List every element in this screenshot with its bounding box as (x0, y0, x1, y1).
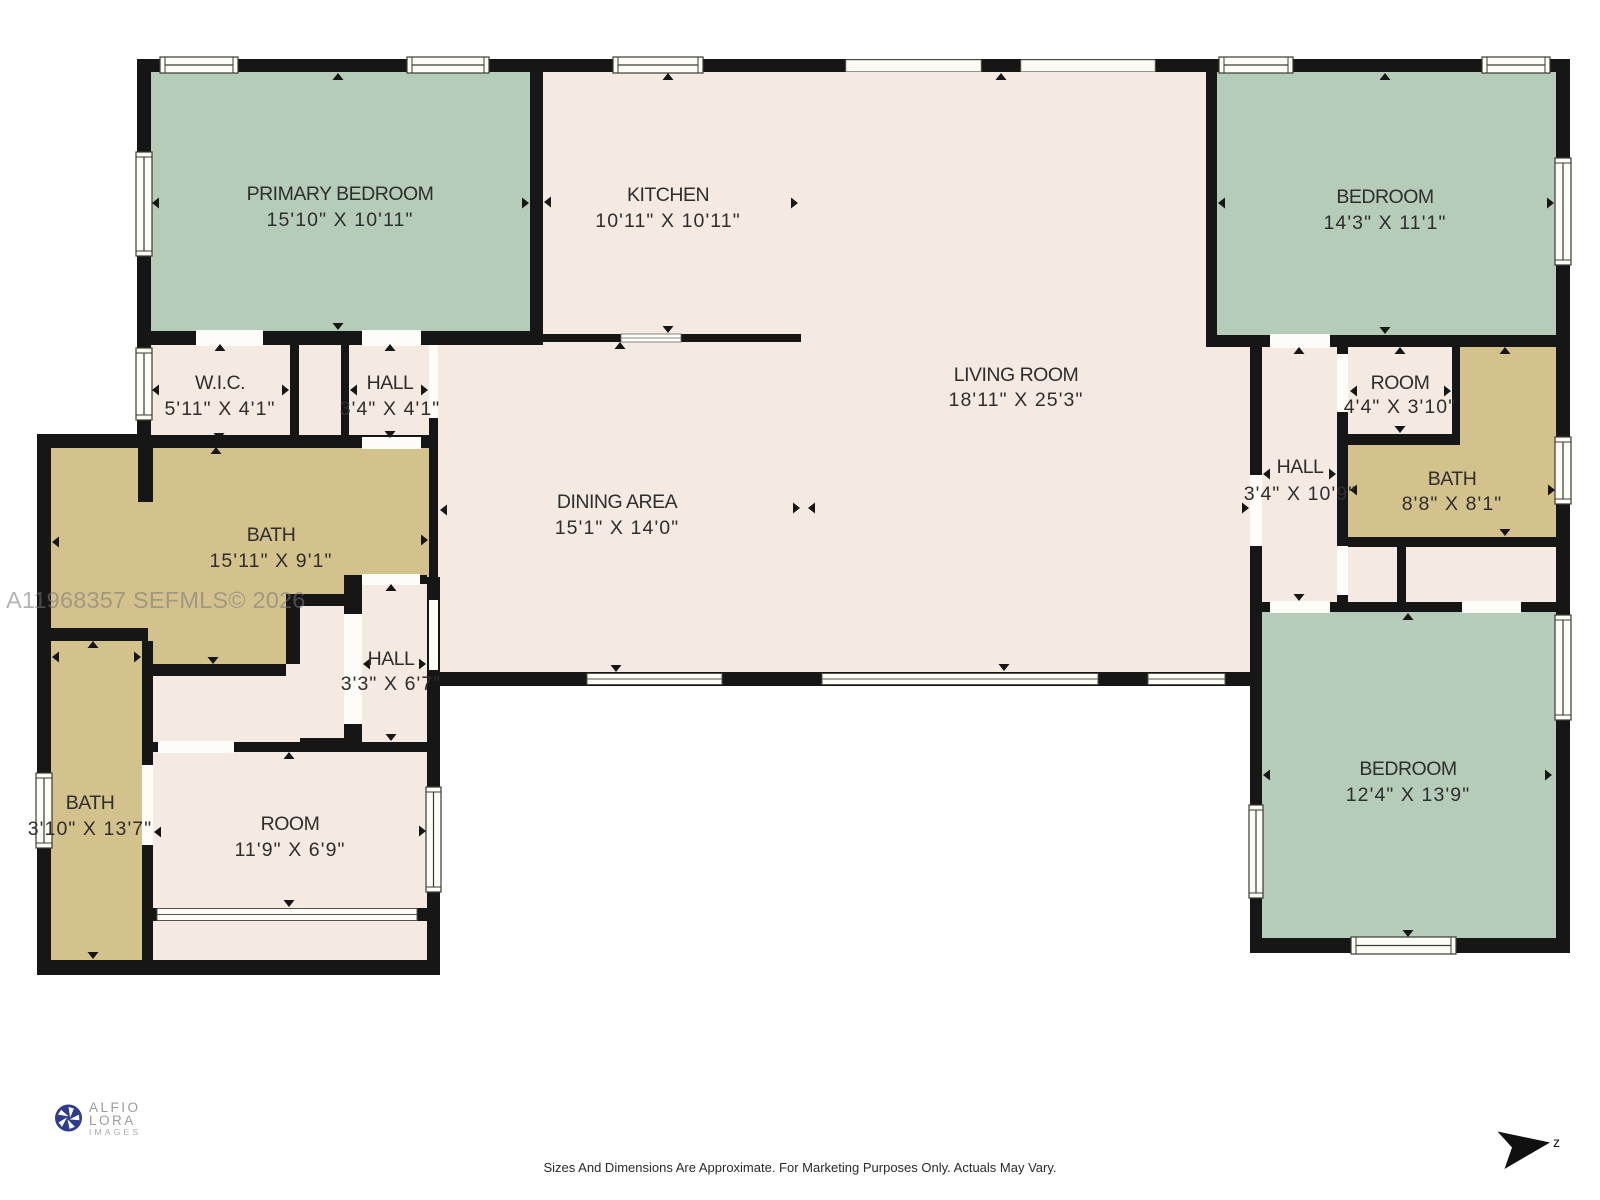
svg-text:HALL: HALL (1277, 456, 1324, 478)
svg-text:14'3" X 11'1": 14'3" X 11'1" (1323, 212, 1446, 234)
svg-text:BATH: BATH (1428, 468, 1477, 490)
svg-text:18'11" X 25'3": 18'11" X 25'3" (949, 389, 1084, 411)
svg-text:15'10" X 10'11": 15'10" X 10'11" (267, 209, 414, 231)
svg-text:3'4" X 10'9": 3'4" X 10'9" (1244, 483, 1357, 505)
svg-text:15'11" X 9'1": 15'11" X 9'1" (209, 550, 332, 572)
svg-text:BATH: BATH (66, 792, 115, 814)
svg-text:12'4" X 13'9": 12'4" X 13'9" (1346, 784, 1471, 806)
svg-text:ROOM: ROOM (261, 813, 320, 835)
svg-text:IMAGES: IMAGES (89, 1127, 141, 1137)
svg-text:LIVING ROOM: LIVING ROOM (954, 364, 1079, 386)
svg-text:Sizes And Dimensions Are Appro: Sizes And Dimensions Are Approximate. Fo… (544, 1160, 1057, 1175)
svg-text:A11968357 SEFMLS© 2026: A11968357 SEFMLS© 2026 (6, 587, 306, 613)
svg-text:10'11" X 10'11": 10'11" X 10'11" (595, 210, 741, 232)
svg-text:KITCHEN: KITCHEN (627, 184, 709, 206)
svg-text:BATH: BATH (247, 524, 296, 546)
svg-text:3'10" X 13'7": 3'10" X 13'7" (28, 818, 153, 840)
svg-text:15'1" X 14'0": 15'1" X 14'0" (555, 517, 680, 539)
svg-text:ROOM: ROOM (1371, 372, 1430, 394)
svg-text:HALL: HALL (367, 372, 414, 394)
svg-text:4'4" X 3'10": 4'4" X 3'10" (1344, 396, 1457, 418)
svg-text:W.I.C.: W.I.C. (195, 372, 245, 394)
svg-text:5'11" X 4'1": 5'11" X 4'1" (164, 398, 275, 420)
svg-text:DINING AREA: DINING AREA (557, 491, 678, 513)
svg-text:BEDROOM: BEDROOM (1336, 186, 1433, 208)
svg-text:LORA: LORA (89, 1113, 136, 1128)
svg-text:PRIMARY BEDROOM: PRIMARY BEDROOM (247, 183, 434, 205)
svg-text:3'4" X 4'1": 3'4" X 4'1" (340, 398, 441, 420)
svg-text:HALL: HALL (368, 648, 415, 670)
svg-text:11'9" X 6'9": 11'9" X 6'9" (234, 839, 345, 861)
svg-text:BEDROOM: BEDROOM (1359, 758, 1456, 780)
svg-text:z: z (1553, 1134, 1560, 1150)
svg-text:8'8" X 8'1": 8'8" X 8'1" (1402, 493, 1503, 515)
svg-text:3'3" X 6'7": 3'3" X 6'7" (341, 673, 442, 695)
